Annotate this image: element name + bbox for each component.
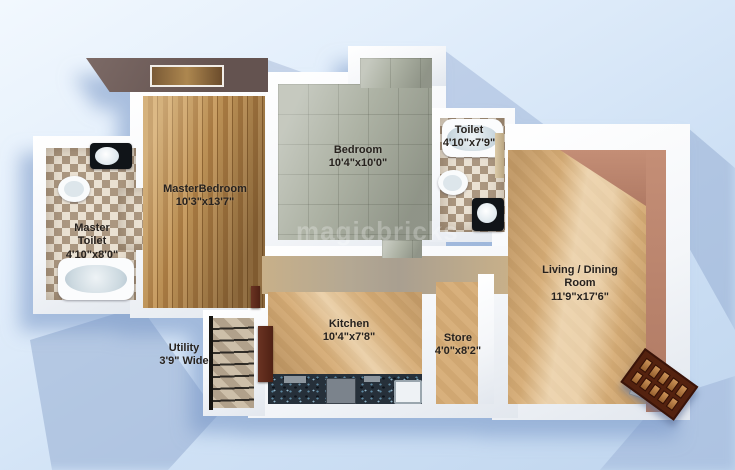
master-toilet-seat: [58, 176, 90, 202]
kitchen-counter: [268, 374, 422, 404]
room-label-kitchen: Kitchen 10'4"x7'8": [323, 318, 375, 345]
room-label-master-bedroom: MasterBedroom 10'3"x13'7": [163, 183, 247, 210]
kitchen-sink: [394, 380, 422, 404]
skylight-window: [150, 65, 224, 87]
counter-item: [364, 376, 380, 382]
toilet-washbasin: [472, 198, 504, 231]
room-label-bedroom: Bedroom 10'4"x10'0": [329, 144, 388, 171]
room-label-master-toilet: Master Toilet 4'10"x8'0": [66, 222, 118, 262]
bedroom-door-gap: [382, 240, 422, 258]
utility-window-frame: [209, 316, 213, 410]
canopy-roof: [86, 58, 268, 92]
toilet-door: [495, 133, 504, 178]
room-label-toilet: Toilet 4'10"x7'9": [443, 124, 495, 151]
master-washbasin: [90, 143, 132, 169]
cabinet-module: [326, 378, 356, 404]
room-label-utility: Utility 3'9" Wide: [159, 342, 208, 369]
room-label-store: Store 4'0"x8'2": [435, 332, 481, 359]
bedroom-floor-nook: [360, 58, 432, 88]
floor-plan-canvas: MasterBedroom 10'3"x13'7" Master Toilet …: [0, 0, 735, 470]
master-bathtub: [58, 258, 134, 300]
utility-louver-window: [212, 318, 254, 408]
utility-door: [258, 326, 273, 382]
master-bedroom-door: [251, 286, 260, 308]
toilet-seat: [438, 170, 468, 195]
room-label-living-dining: Living / Dining Room 11'9"x17'6": [542, 264, 618, 304]
stove-hob: [284, 376, 306, 383]
